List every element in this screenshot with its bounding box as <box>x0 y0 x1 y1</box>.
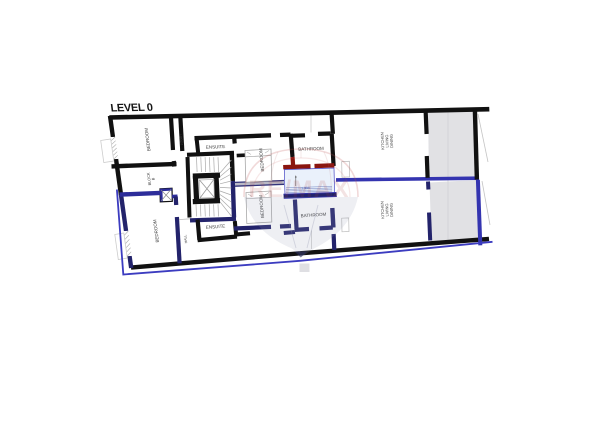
svg-text:DINING: DINING <box>389 203 394 217</box>
svg-text:ENSUITE: ENSUITE <box>206 144 226 150</box>
svg-text:LEVEL 0: LEVEL 0 <box>110 102 154 115</box>
svg-text:DINING: DINING <box>389 134 394 148</box>
svg-text:RE/MAX: RE/MAX <box>248 176 349 203</box>
